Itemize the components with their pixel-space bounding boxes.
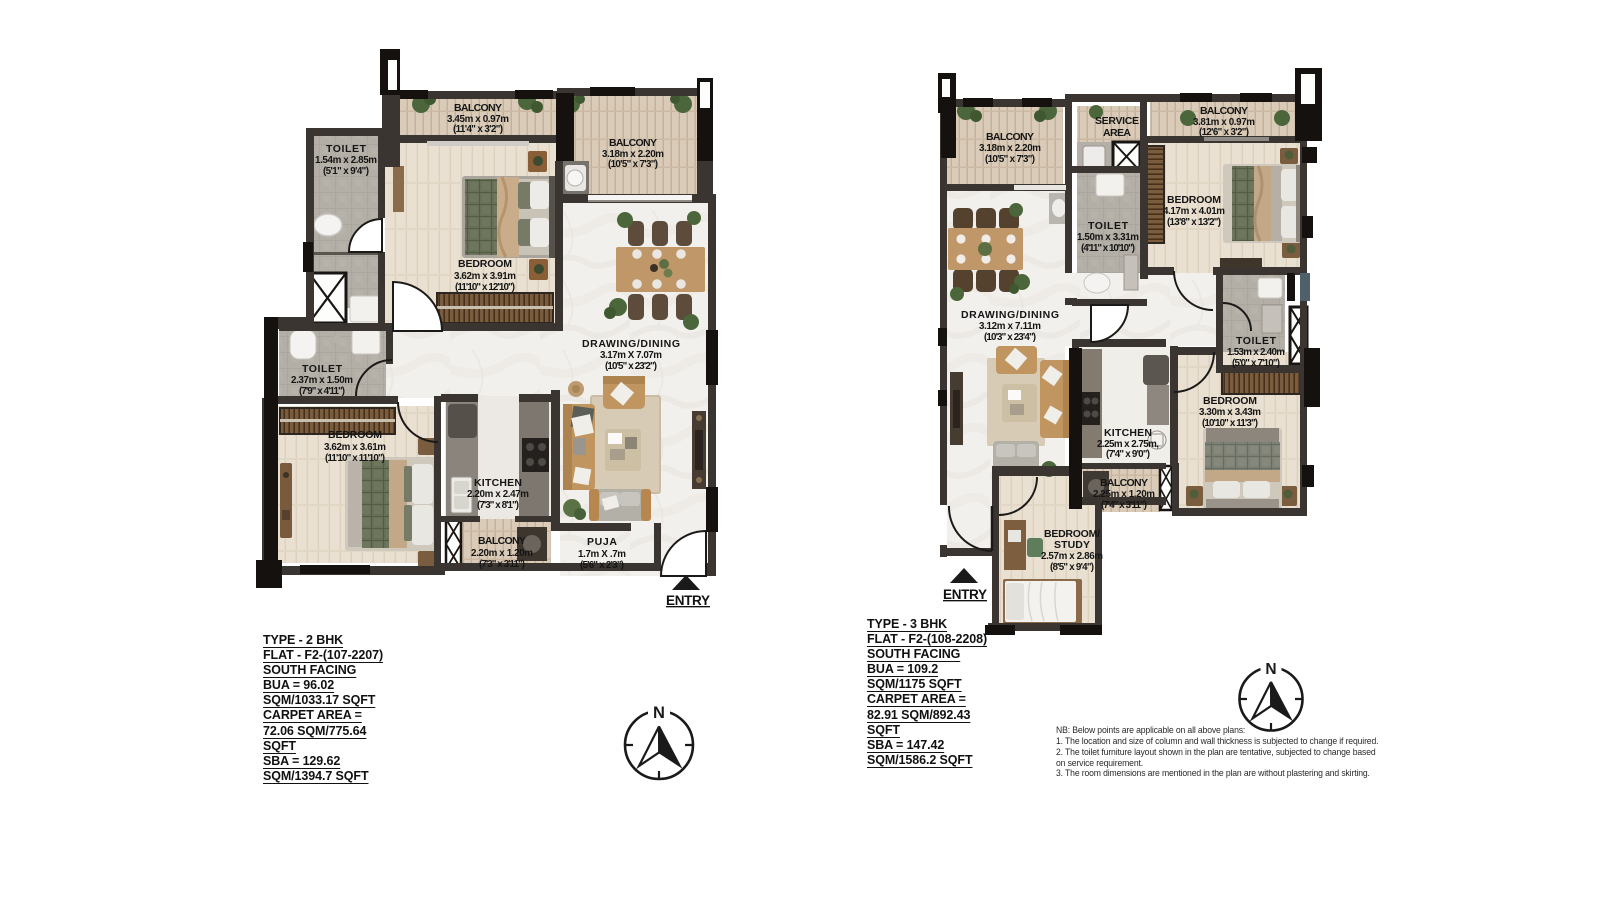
- svg-text:SERVICE: SERVICE: [1095, 115, 1139, 127]
- svg-text:DRAWING/DINING: DRAWING/DINING: [961, 309, 1059, 321]
- svg-text:BEDROOM: BEDROOM: [1167, 194, 1221, 206]
- svg-text:BEDROOM: BEDROOM: [328, 429, 382, 441]
- svg-text:(4'11" x 10'10"): (4'11" x 10'10"): [1081, 243, 1135, 254]
- svg-text:1.50m x 3.31m: 1.50m x 3.31m: [1077, 232, 1139, 243]
- svg-text:AREA: AREA: [1103, 127, 1131, 139]
- svg-text:(11'10" x 11'10"): (11'10" x 11'10"): [325, 453, 385, 464]
- svg-text:2.20m x 2.47m: 2.20m x 2.47m: [467, 489, 529, 500]
- svg-text:BEDROOM: BEDROOM: [1203, 395, 1257, 407]
- svg-text:STUDY: STUDY: [1054, 539, 1090, 551]
- svg-text:(12'6" x 3'2"): (12'6" x 3'2"): [1199, 127, 1249, 138]
- svg-text:(11'10" x 12'10"): (11'10" x 12'10"): [455, 282, 515, 293]
- svg-text:3.62m x 3.61m: 3.62m x 3.61m: [324, 442, 386, 453]
- svg-text:(5'6" x 2'3"): (5'6" x 2'3"): [580, 560, 624, 571]
- svg-text:BALCONY: BALCONY: [1100, 477, 1148, 489]
- svg-text:(5'1" x 9'4"): (5'1" x 9'4"): [323, 166, 369, 177]
- svg-text:N: N: [653, 704, 665, 722]
- svg-text:TOILET: TOILET: [1236, 335, 1277, 347]
- svg-text:4.17m x 4.01m: 4.17m x 4.01m: [1163, 206, 1225, 217]
- svg-text:3.12m x 7.11m: 3.12m x 7.11m: [979, 321, 1041, 332]
- svg-text:(10'5" x 7'3"): (10'5" x 7'3"): [985, 154, 1035, 165]
- svg-text:(11'4" x 3'2"): (11'4" x 3'2"): [453, 124, 503, 135]
- svg-text:3.30m x 3.43m: 3.30m x 3.43m: [1199, 407, 1261, 418]
- svg-text:3.17m X 7.07m: 3.17m X 7.07m: [600, 350, 662, 361]
- svg-text:(7'3" x 3'11"): (7'3" x 3'11"): [479, 559, 525, 570]
- svg-text:(10'10" x 11'3"): (10'10" x 11'3"): [1202, 418, 1258, 429]
- svg-text:TOILET: TOILET: [1088, 220, 1129, 232]
- svg-text:(10'5" x 23'2"): (10'5" x 23'2"): [605, 361, 657, 372]
- svg-text:3.62m x 3.91m: 3.62m x 3.91m: [454, 271, 516, 282]
- svg-text:BALCONY: BALCONY: [1200, 105, 1248, 117]
- svg-text:(7'4" x 3'11"): (7'4" x 3'11"): [1101, 500, 1147, 511]
- svg-text:(7'4" x 9'0"): (7'4" x 9'0"): [1106, 449, 1150, 460]
- svg-text:(13'8" x 13'2"): (13'8" x 13'2"): [1167, 217, 1221, 228]
- svg-text:(5'0" x 7'10"): (5'0" x 7'10"): [1232, 358, 1280, 369]
- svg-text:PUJA: PUJA: [587, 536, 617, 548]
- svg-text:2.57m x 2.86m: 2.57m x 2.86m: [1041, 551, 1103, 562]
- svg-text:TOILET: TOILET: [326, 143, 367, 155]
- svg-text:BEDROOM: BEDROOM: [458, 258, 512, 270]
- svg-text:2.20m x 1.20m: 2.20m x 1.20m: [471, 548, 533, 559]
- svg-text:(7'9" x 4'11"): (7'9" x 4'11"): [299, 386, 345, 397]
- svg-text:TOILET: TOILET: [302, 363, 343, 375]
- svg-text:3.18m x 2.20m: 3.18m x 2.20m: [979, 143, 1041, 154]
- svg-text:(10'5" x 7'3"): (10'5" x 7'3"): [608, 159, 658, 170]
- svg-text:ENTRY: ENTRY: [666, 593, 710, 608]
- svg-text:2.25m x 1.20m: 2.25m x 1.20m: [1093, 489, 1155, 500]
- svg-text:BALCONY: BALCONY: [478, 535, 526, 547]
- svg-text:BALCONY: BALCONY: [454, 102, 502, 114]
- svg-text:1.54m x 2.85m: 1.54m x 2.85m: [315, 155, 377, 166]
- svg-text:(7'3" x 8'1"): (7'3" x 8'1"): [477, 500, 519, 511]
- svg-text:DRAWING/DINING: DRAWING/DINING: [582, 338, 680, 350]
- svg-text:1.53m x 2.40m: 1.53m x 2.40m: [1227, 347, 1285, 358]
- svg-text:ENTRY: ENTRY: [943, 587, 987, 602]
- svg-text:1.7m X .7m: 1.7m X .7m: [578, 549, 626, 560]
- svg-text:N: N: [1265, 661, 1276, 678]
- svg-text:BALCONY: BALCONY: [986, 131, 1034, 143]
- svg-text:(8'5" x 9'4"): (8'5" x 9'4"): [1050, 562, 1094, 573]
- svg-text:KITCHEN: KITCHEN: [1104, 427, 1152, 439]
- svg-text:BALCONY: BALCONY: [609, 137, 657, 149]
- svg-text:(10'3" x 23'4"): (10'3" x 23'4"): [984, 332, 1036, 343]
- svg-text:KITCHEN: KITCHEN: [474, 477, 522, 489]
- svg-text:2.37m x 1.50m: 2.37m x 1.50m: [291, 375, 353, 386]
